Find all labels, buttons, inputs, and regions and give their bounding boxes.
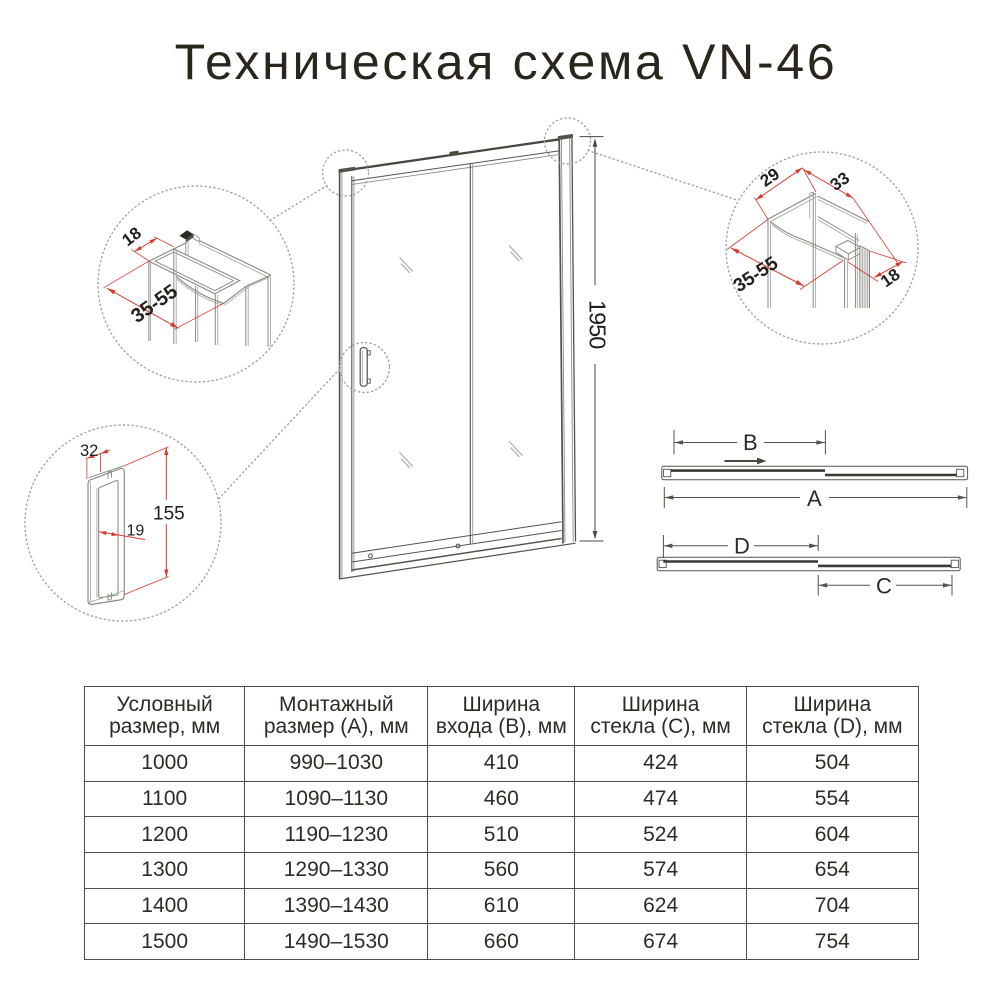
svg-text:19: 19 xyxy=(127,523,145,540)
svg-text:18: 18 xyxy=(877,265,903,291)
svg-text:33: 33 xyxy=(827,168,853,194)
svg-text:1950: 1950 xyxy=(584,300,610,349)
svg-text:29: 29 xyxy=(757,164,783,190)
svg-text:C: C xyxy=(876,574,892,599)
svg-text:18: 18 xyxy=(118,223,145,250)
svg-text:35-55: 35-55 xyxy=(730,253,783,297)
svg-text:A: A xyxy=(807,486,822,511)
svg-text:155: 155 xyxy=(153,504,185,525)
svg-text:D: D xyxy=(734,534,750,559)
svg-text:B: B xyxy=(743,430,758,455)
svg-text:32: 32 xyxy=(80,442,98,460)
